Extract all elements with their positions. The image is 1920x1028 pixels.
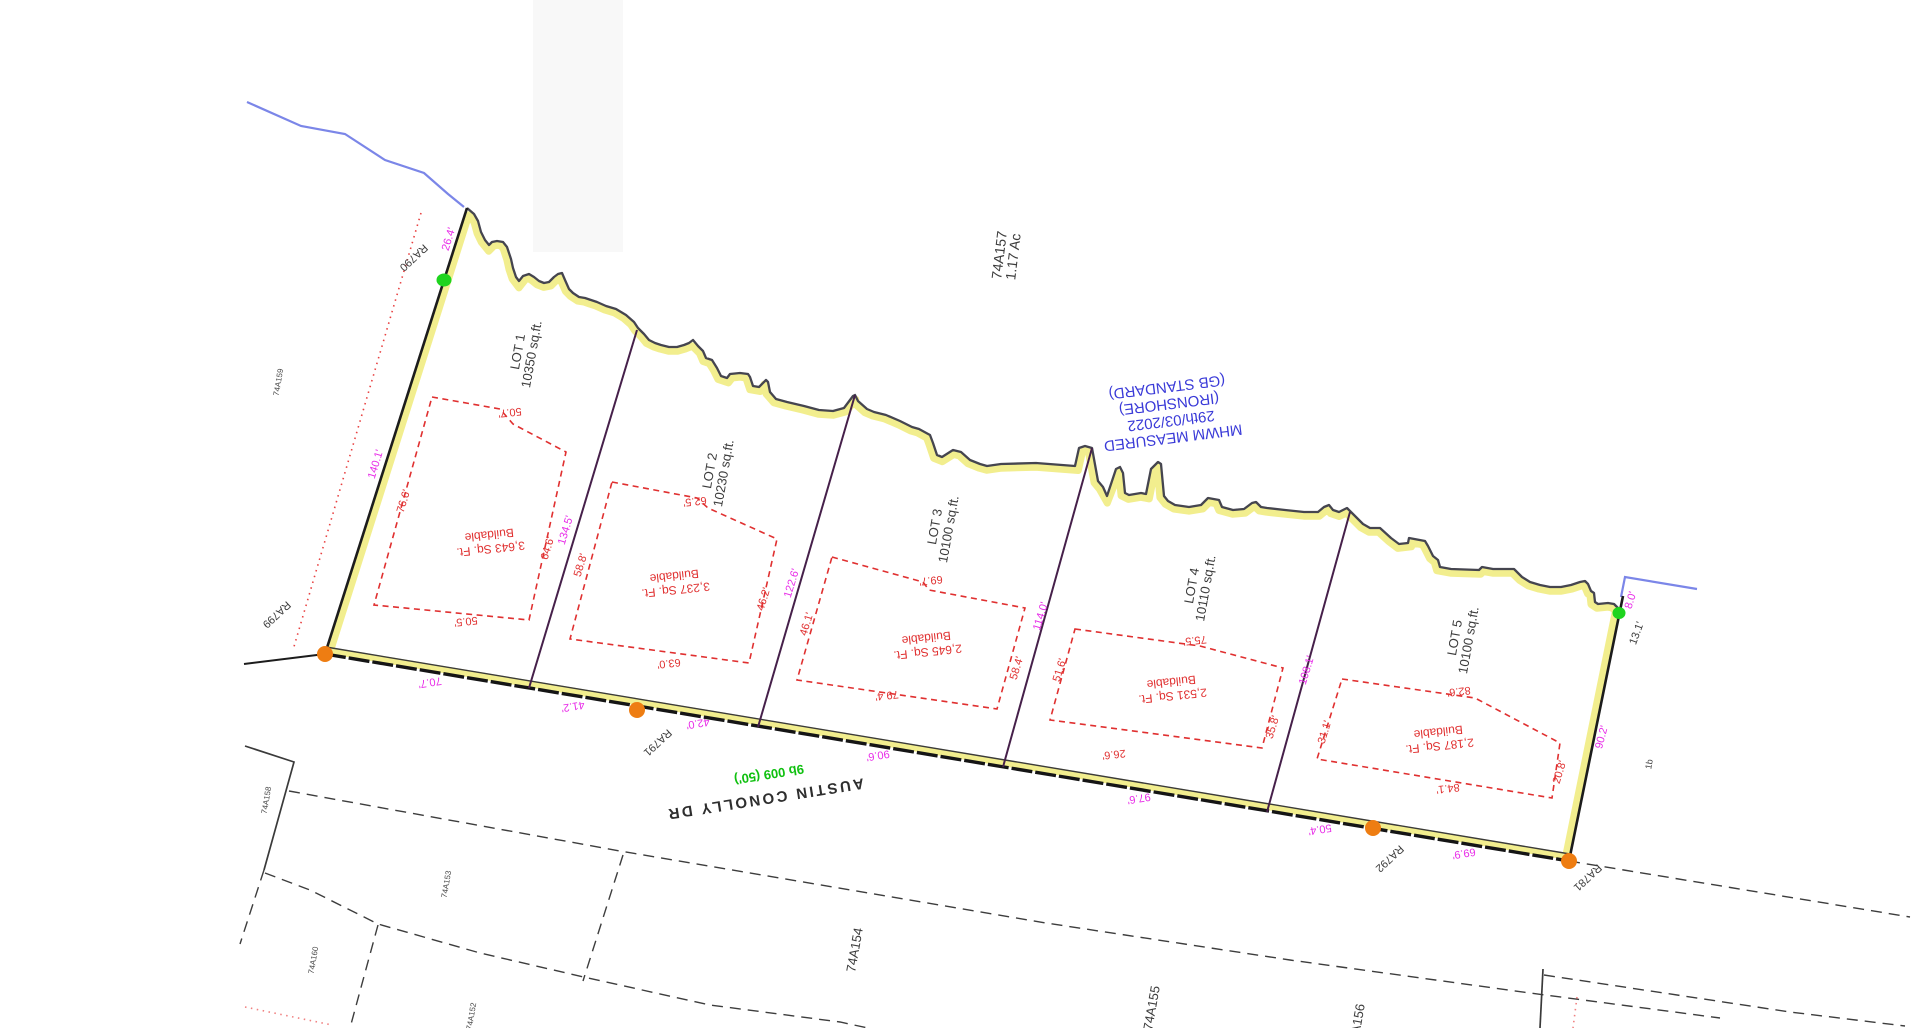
svg-text:62.5': 62.5'	[683, 494, 708, 508]
svg-text:84.1': 84.1'	[1436, 781, 1461, 795]
svg-text:63.0': 63.0'	[657, 656, 682, 670]
svg-text:79.4': 79.4'	[875, 688, 900, 702]
svg-text:26.6': 26.6'	[1102, 747, 1127, 761]
svg-text:50.7': 50.7'	[498, 405, 523, 419]
svg-text:50.5': 50.5'	[454, 614, 479, 628]
svg-text:1b: 1b	[1643, 758, 1655, 770]
svg-text:82.6': 82.6'	[1447, 684, 1472, 698]
svg-text:69.7': 69.7'	[919, 573, 944, 587]
svg-text:75.5': 75.5'	[1183, 633, 1208, 647]
